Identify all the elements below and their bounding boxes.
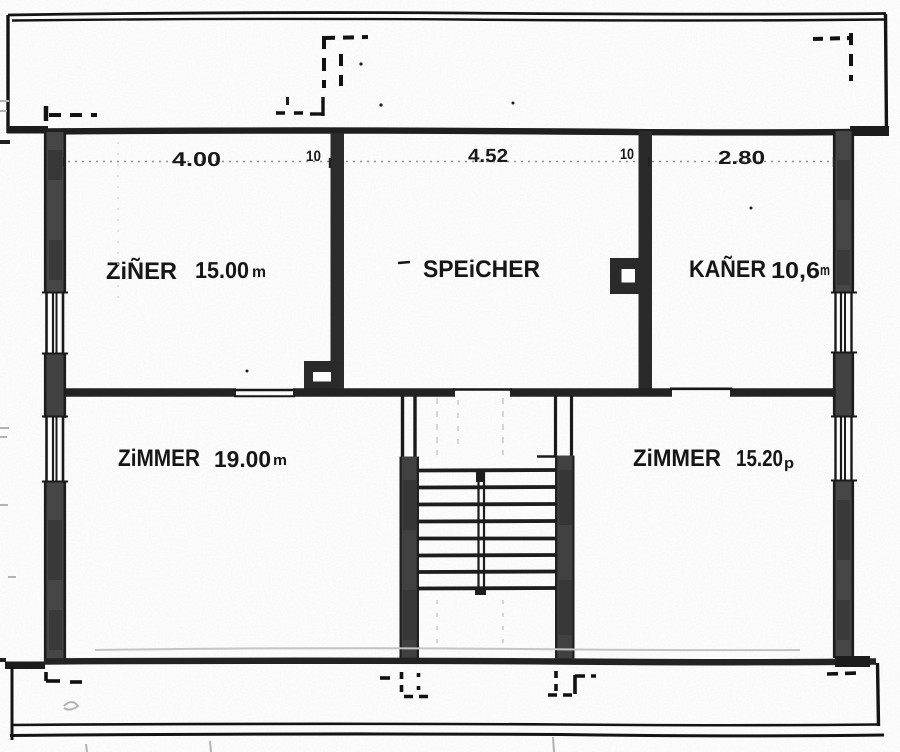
- svg-text:10: 10: [620, 146, 634, 163]
- svg-text:4.00: 4.00: [172, 149, 221, 171]
- svg-text:2.80: 2.80: [718, 148, 765, 169]
- svg-text:m: m: [252, 264, 266, 281]
- svg-text:m: m: [820, 262, 830, 279]
- svg-text:ZiMMER: ZiMMER: [633, 445, 721, 472]
- svg-text:19.00: 19.00: [214, 446, 271, 472]
- svg-text:p: p: [784, 455, 794, 472]
- svg-text:15.00: 15.00: [195, 257, 249, 283]
- svg-text:KAÑER: KAÑER: [689, 255, 766, 283]
- svg-text:15.20: 15.20: [736, 445, 783, 471]
- svg-text:ZiÑER: ZiÑER: [106, 257, 177, 285]
- svg-text:10,6: 10,6: [771, 257, 820, 283]
- svg-text:10: 10: [306, 148, 321, 165]
- svg-text:4.52: 4.52: [468, 146, 508, 167]
- svg-text:m: m: [273, 452, 287, 469]
- svg-text:ZiMMER: ZiMMER: [118, 445, 200, 472]
- svg-text:SPEiCHER: SPEiCHER: [423, 256, 540, 283]
